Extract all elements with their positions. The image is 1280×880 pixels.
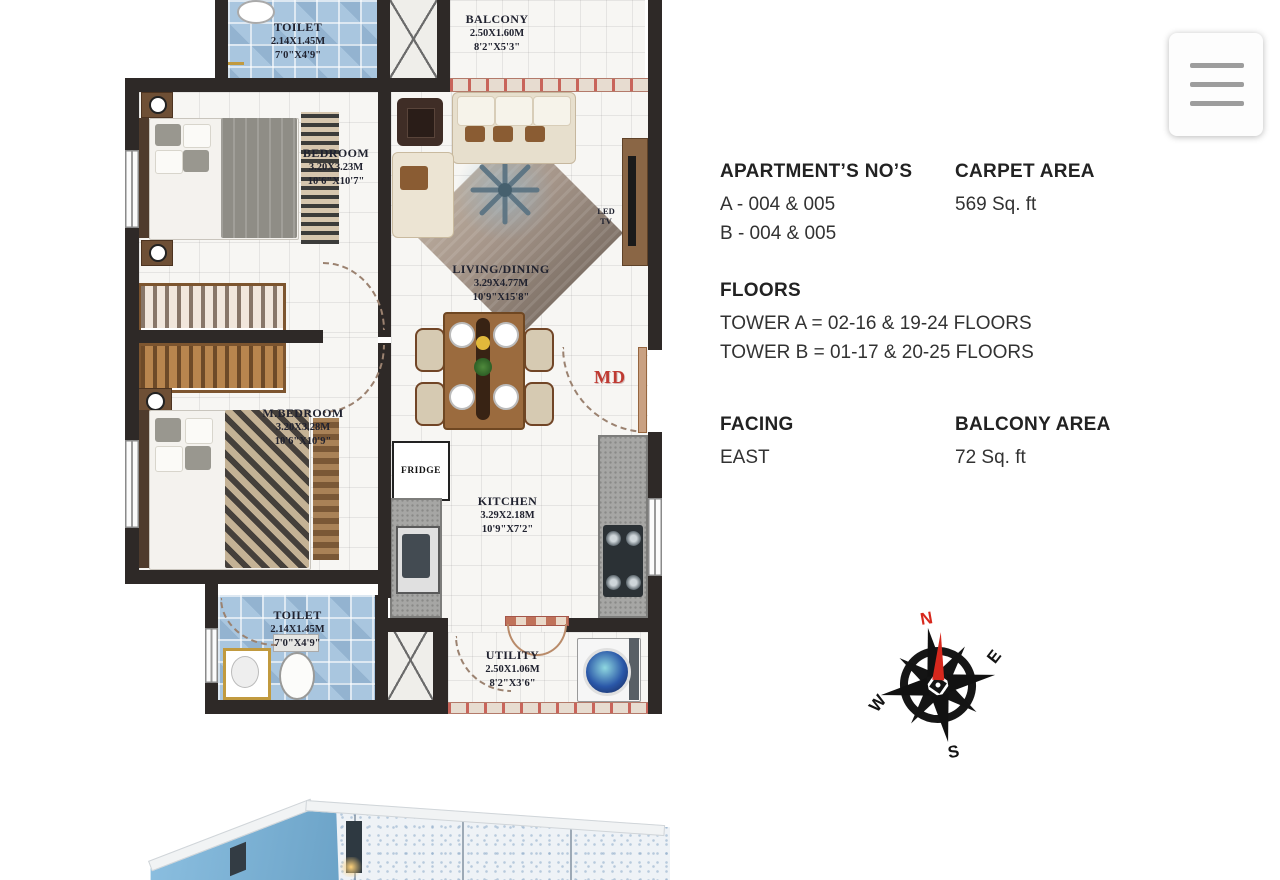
sofa-cushion bbox=[533, 96, 571, 126]
window bbox=[205, 628, 218, 683]
compass-north-label: N bbox=[919, 608, 934, 629]
wall bbox=[378, 92, 391, 337]
room-label-living: LIVING/DINING 3.29X4.77M 10'9"X15'8" bbox=[417, 262, 585, 304]
lamp bbox=[146, 392, 165, 411]
main-door-leaf bbox=[638, 347, 647, 433]
pillow bbox=[185, 418, 213, 444]
room-dim-ft: 10'9"X15'8" bbox=[417, 291, 585, 304]
wardrobe bbox=[138, 283, 286, 333]
floors-section: FLOORS TOWER A = 02-16 & 19-24 FLOORS TO… bbox=[720, 280, 1034, 367]
balcony-area-value: 72 Sq. ft bbox=[955, 443, 1111, 472]
room-dim-ft: 7'0"X4'9" bbox=[220, 637, 375, 650]
facing-title: FACING bbox=[720, 414, 794, 436]
hamburger-bar bbox=[1190, 63, 1244, 68]
room-dim-m: 2.14X1.45M bbox=[218, 35, 378, 48]
balcony-area-title: BALCONY AREA bbox=[955, 414, 1111, 436]
room-dim-m: 2.14X1.45M bbox=[220, 623, 375, 636]
room-label-master-bedroom: M.BEDROOM 3.20X3.28M 10'6"X10'9" bbox=[228, 406, 378, 448]
menu-button[interactable] bbox=[1169, 33, 1263, 136]
room-name: UTILITY bbox=[450, 648, 575, 663]
floors-tower-a: TOWER A = 02-16 & 19-24 FLOORS bbox=[720, 309, 1034, 338]
balcony-area-section: BALCONY AREA 72 Sq. ft bbox=[955, 414, 1111, 472]
pillow bbox=[155, 418, 181, 442]
window bbox=[125, 440, 139, 528]
apartments-line-b: B - 004 & 005 bbox=[720, 219, 912, 248]
utility-railing bbox=[448, 702, 648, 714]
fridge-label: FRIDGE bbox=[401, 466, 441, 476]
sofa-pillow bbox=[525, 126, 545, 142]
led-label: LED bbox=[591, 206, 621, 216]
burner bbox=[606, 531, 621, 546]
wall bbox=[565, 618, 648, 632]
washing-machine-drum bbox=[583, 648, 631, 696]
sofa-cushion bbox=[495, 96, 533, 126]
wall bbox=[125, 330, 323, 343]
room-label-bedroom: BEDROOM 3.20X3.23M 10'6"X10'7" bbox=[290, 146, 382, 188]
room-name: M.BEDROOM bbox=[228, 406, 378, 421]
wall bbox=[378, 618, 448, 632]
pillow bbox=[185, 446, 211, 470]
compass-rose-icon: N E W S bbox=[858, 600, 1018, 770]
room-dim-ft: 8'2"X3'6" bbox=[450, 677, 575, 690]
plate bbox=[493, 322, 519, 348]
plate bbox=[449, 322, 475, 348]
plate bbox=[449, 384, 475, 410]
tv-label: TV bbox=[591, 216, 621, 226]
sink-basin bbox=[402, 534, 430, 578]
dining-chair bbox=[524, 328, 554, 372]
room-dim-m: 3.20X3.28M bbox=[228, 421, 378, 434]
room-dim-ft: 8'2"X5'3" bbox=[452, 41, 542, 54]
room-label-toilet-top: TOILET 2.14X1.45M 7'0"X4'9" bbox=[218, 20, 378, 62]
shaft-top bbox=[390, 0, 437, 78]
room-dim-m: 2.50X1.60M bbox=[452, 27, 542, 40]
burner bbox=[626, 531, 641, 546]
wall bbox=[378, 343, 391, 598]
room-dim-ft: 10'6"X10'7" bbox=[290, 175, 382, 188]
room-label-utility: UTILITY 2.50X1.06M 8'2"X3'6" bbox=[450, 648, 575, 690]
room-label-kitchen: KITCHEN 3.29X2.18M 10'9"X7'2" bbox=[425, 494, 590, 536]
floor-plan: FRIDGE TOILET 2.14X1.45M 7'0"X4'9 bbox=[125, 0, 662, 735]
armchair-pillow bbox=[400, 166, 428, 190]
pillow bbox=[155, 124, 181, 146]
balcony-railing bbox=[450, 78, 648, 92]
facing-section: FACING EAST bbox=[720, 414, 794, 472]
pillow bbox=[155, 446, 183, 472]
centerpiece-plant bbox=[474, 358, 492, 376]
burner bbox=[626, 575, 641, 590]
pillow bbox=[183, 150, 209, 172]
dining-chair bbox=[415, 328, 445, 372]
floors-tower-b: TOWER B = 01-17 & 20-25 FLOORS bbox=[720, 338, 1034, 367]
tv bbox=[628, 156, 636, 246]
room-dim-m: 2.50X1.06M bbox=[450, 663, 575, 676]
room-dim-ft: 7'0"X4'9" bbox=[218, 49, 378, 62]
hamburger-bar bbox=[1190, 82, 1244, 87]
blanket bbox=[221, 118, 297, 238]
side-table-top bbox=[407, 108, 435, 138]
burner bbox=[606, 575, 621, 590]
facing-value: EAST bbox=[720, 443, 794, 472]
room-label-toilet-bottom: TOILET 2.14X1.45M 7'0"X4'9" bbox=[220, 608, 375, 650]
carpet-area-section: CARPET AREA 569 Sq. ft bbox=[955, 161, 1095, 219]
lamp bbox=[149, 96, 167, 114]
floors-title: FLOORS bbox=[720, 280, 1034, 302]
bed-headboard bbox=[139, 118, 149, 238]
room-dim-ft: 10'6"X10'9" bbox=[228, 435, 378, 448]
room-name: BEDROOM bbox=[290, 146, 382, 161]
room-dim-m: 3.29X4.77M bbox=[417, 277, 585, 290]
window bbox=[125, 150, 139, 228]
plate bbox=[493, 384, 519, 410]
room-name: LIVING/DINING bbox=[417, 262, 585, 277]
window bbox=[648, 498, 662, 576]
wall bbox=[205, 700, 448, 714]
room-label-balcony: BALCONY 2.50X1.60M 8'2"X5'3" bbox=[452, 12, 542, 54]
carpet-area-title: CARPET AREA bbox=[955, 161, 1095, 183]
lamp bbox=[149, 244, 167, 262]
compass-south-label: S bbox=[946, 741, 960, 762]
room-dim-m: 3.29X2.18M bbox=[425, 509, 590, 522]
apartments-line-a: A - 004 & 005 bbox=[720, 190, 912, 219]
pillow bbox=[183, 124, 211, 148]
wall bbox=[377, 0, 390, 85]
bed-headboard bbox=[139, 410, 149, 568]
armchair bbox=[392, 152, 454, 238]
wall bbox=[437, 0, 450, 85]
page: FRIDGE TOILET 2.14X1.45M 7'0"X4'9 bbox=[0, 0, 1280, 880]
room-name: BALCONY bbox=[452, 12, 542, 27]
sofa-cushion bbox=[457, 96, 495, 126]
wall bbox=[125, 570, 391, 584]
sofa-pillow bbox=[493, 126, 513, 142]
fridge: FRIDGE bbox=[392, 441, 450, 501]
shaft-bottom bbox=[388, 620, 433, 700]
building-light-glow bbox=[338, 857, 364, 877]
pillow bbox=[155, 150, 183, 174]
dining-chair bbox=[415, 382, 445, 426]
wall bbox=[125, 78, 450, 92]
carpet-area-value: 569 Sq. ft bbox=[955, 190, 1095, 219]
room-name: TOILET bbox=[218, 20, 378, 35]
washbasin-bowl bbox=[231, 656, 259, 688]
hamburger-bar bbox=[1190, 101, 1244, 106]
apartments-title: APARTMENT’S NO’S bbox=[720, 161, 912, 183]
dining-chair bbox=[524, 382, 554, 426]
room-dim-ft: 10'9"X7'2" bbox=[425, 523, 590, 536]
wall bbox=[375, 595, 388, 714]
room-dim-m: 3.20X3.23M bbox=[290, 161, 382, 174]
compass: N E W S bbox=[858, 600, 1018, 770]
main-door-label: MD bbox=[587, 366, 633, 389]
apartments-section: APARTMENT’S NO’S A - 004 & 005 B - 004 &… bbox=[720, 161, 912, 248]
wall bbox=[648, 0, 662, 350]
wardrobe bbox=[138, 343, 286, 393]
bowl bbox=[476, 336, 490, 350]
compass-east-label: E bbox=[983, 646, 1005, 667]
building-render bbox=[140, 795, 670, 880]
room-name: KITCHEN bbox=[425, 494, 590, 509]
sofa-pillow bbox=[465, 126, 485, 142]
room-name: TOILET bbox=[220, 608, 375, 623]
toilet-bowl bbox=[279, 652, 315, 700]
led-tv-label: LED TV bbox=[591, 206, 621, 226]
